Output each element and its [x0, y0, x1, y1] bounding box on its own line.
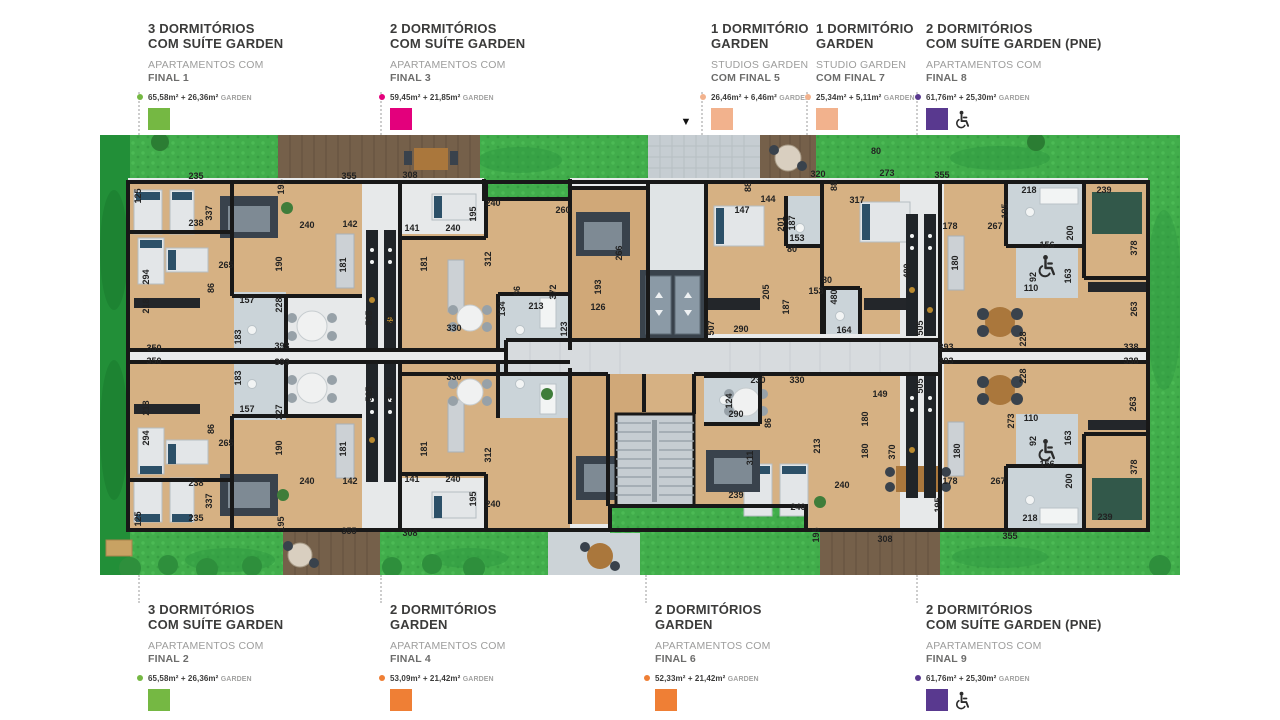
legend-color-swatch — [148, 689, 170, 711]
svg-text:267: 267 — [990, 476, 1005, 486]
svg-text:88: 88 — [743, 182, 753, 192]
legend-area: 61,76m² + 25,30m² GARDEN — [926, 674, 1147, 683]
svg-text:355: 355 — [1002, 531, 1017, 541]
svg-text:480: 480 — [829, 289, 839, 304]
svg-text:240: 240 — [445, 223, 460, 233]
svg-text:239: 239 — [1097, 512, 1112, 522]
legend-area: 52,33m² + 21,42m² GARDEN — [655, 674, 876, 683]
svg-text:88: 88 — [829, 181, 839, 191]
svg-text:240: 240 — [299, 220, 314, 230]
svg-text:80: 80 — [871, 146, 881, 156]
svg-text:180: 180 — [860, 443, 870, 458]
svg-text:157: 157 — [239, 404, 254, 414]
svg-text:505: 505 — [915, 378, 925, 393]
svg-text:125: 125 — [133, 188, 143, 203]
legend-title: 3 DORMITÓRIOS COM SUÍTE GARDEN — [148, 22, 369, 52]
svg-text:337: 337 — [204, 493, 214, 508]
svg-text:190: 190 — [274, 440, 284, 455]
legend-bullet-icon — [137, 675, 143, 681]
legend-title: 2 DORMITÓRIOS GARDEN — [390, 603, 611, 633]
svg-text:294: 294 — [141, 269, 151, 284]
svg-text:350: 350 — [146, 356, 161, 366]
legend-bullet-icon — [379, 675, 385, 681]
svg-text:180: 180 — [860, 411, 870, 426]
svg-text:378: 378 — [1129, 240, 1139, 255]
svg-text:153: 153 — [789, 233, 804, 243]
svg-text:110: 110 — [1024, 413, 1039, 423]
svg-text:330: 330 — [789, 375, 804, 385]
svg-text:338: 338 — [1123, 342, 1138, 352]
svg-text:372: 372 — [548, 284, 558, 299]
legend-color-swatch — [390, 108, 412, 130]
svg-text:240: 240 — [790, 502, 805, 512]
legend-dotted-line — [380, 575, 382, 603]
legend-dotted-line — [916, 575, 918, 603]
svg-text:308: 308 — [402, 170, 417, 180]
legend-title: 2 DORMITÓRIOS COM SUÍTE GARDEN — [390, 22, 611, 52]
svg-text:320: 320 — [810, 169, 825, 179]
svg-text:238: 238 — [188, 218, 203, 228]
svg-text:134: 134 — [497, 301, 507, 316]
svg-text:393: 393 — [938, 342, 953, 352]
svg-text:370: 370 — [887, 444, 897, 459]
legend-bullet-icon — [379, 94, 385, 100]
legend-title: 2 DORMITÓRIOS GARDEN — [655, 603, 876, 633]
svg-text:149: 149 — [872, 389, 887, 399]
svg-text:350: 350 — [146, 343, 161, 353]
svg-text:393: 393 — [274, 341, 289, 351]
svg-text:86: 86 — [512, 286, 522, 296]
svg-text:183: 183 — [233, 370, 243, 385]
svg-text:195: 195 — [468, 206, 478, 221]
svg-text:355: 355 — [934, 170, 949, 180]
svg-text:290: 290 — [728, 409, 743, 419]
svg-text:193: 193 — [593, 279, 603, 294]
svg-text:181: 181 — [338, 441, 348, 456]
legend-subtitle: APARTAMENTOS COMFINAL 3 — [390, 59, 611, 85]
svg-text:240: 240 — [445, 474, 460, 484]
svg-text:218: 218 — [141, 298, 151, 313]
legend-subtitle: APARTAMENTOS COMFINAL 8 — [926, 59, 1147, 85]
svg-text:181: 181 — [338, 257, 348, 272]
svg-text:260: 260 — [555, 205, 570, 215]
svg-text:195: 195 — [811, 527, 821, 542]
picnic-table — [106, 540, 132, 556]
svg-text:213: 213 — [812, 438, 822, 453]
legend-bullet-icon — [644, 675, 650, 681]
legend-subtitle: APARTAMENTOS COMFINAL 9 — [926, 640, 1147, 666]
svg-text:205: 205 — [761, 284, 771, 299]
svg-text:187: 187 — [781, 299, 791, 314]
svg-text:228: 228 — [1018, 331, 1028, 346]
svg-text:123: 123 — [559, 321, 569, 336]
legend-color-swatch — [711, 108, 733, 130]
svg-text:195: 195 — [1000, 203, 1010, 218]
svg-text:200: 200 — [1065, 225, 1075, 240]
svg-text:181: 181 — [419, 256, 429, 271]
svg-text:163: 163 — [1063, 430, 1073, 445]
legend-item: 2 DORMITÓRIOS COM SUÍTE GARDEN APARTAMEN… — [379, 22, 611, 135]
svg-text:235: 235 — [188, 513, 203, 523]
svg-text:178: 178 — [942, 476, 957, 486]
svg-text:311: 311 — [745, 451, 755, 466]
svg-text:157: 157 — [239, 295, 254, 305]
legend-color-swatch — [655, 689, 677, 711]
svg-text:201: 201 — [776, 216, 786, 231]
svg-text:187: 187 — [787, 215, 797, 230]
floor-plan-rendering: 1252353372382658629421815718335039319024… — [100, 135, 1180, 575]
svg-text:317: 317 — [849, 195, 864, 205]
svg-text:312: 312 — [483, 447, 493, 462]
legend-bullet-icon — [805, 94, 811, 100]
legend-item: 2 DORMITÓRIOS GARDEN APARTAMENTOS COMFIN… — [644, 603, 876, 703]
svg-text:218: 218 — [1022, 513, 1037, 523]
svg-text:312: 312 — [483, 251, 493, 266]
svg-text:239: 239 — [728, 490, 743, 500]
svg-text:505: 505 — [915, 320, 925, 335]
svg-text:294: 294 — [141, 430, 151, 445]
legend-color-swatch — [390, 689, 412, 711]
svg-text:141: 141 — [404, 474, 419, 484]
legend-area: 59,45m² + 21,85m² GARDEN — [390, 93, 611, 102]
svg-text:480: 480 — [902, 263, 912, 278]
svg-text:180: 180 — [952, 443, 962, 458]
legend-color-swatch — [148, 108, 170, 130]
svg-text:200: 200 — [1064, 473, 1074, 488]
svg-text:337: 337 — [204, 205, 214, 220]
svg-text:330: 330 — [446, 323, 461, 333]
svg-text:378: 378 — [1129, 459, 1139, 474]
legend-area: 61,76m² + 25,30m² GARDEN — [926, 93, 1147, 102]
staircase — [616, 414, 694, 506]
svg-text:265: 265 — [218, 438, 233, 448]
svg-text:163: 163 — [1063, 268, 1073, 283]
svg-text:142: 142 — [342, 219, 357, 229]
svg-text:86: 86 — [206, 283, 216, 293]
legend-item: 2 DORMITÓRIOS GARDEN APARTAMENTOS COMFIN… — [379, 603, 611, 703]
legend-item: 2 DORMITÓRIOS COM SUÍTE GARDEN (PNE) APA… — [915, 22, 1147, 135]
svg-text:355: 355 — [341, 171, 356, 181]
svg-text:507: 507 — [706, 320, 716, 335]
svg-text:178: 178 — [942, 221, 957, 231]
svg-text:153: 153 — [808, 286, 823, 296]
svg-text:124: 124 — [724, 393, 734, 408]
floorplan-brochure: ▼ — [0, 0, 1280, 720]
svg-text:92: 92 — [1028, 436, 1038, 446]
svg-text:183: 183 — [233, 329, 243, 344]
legend-bullet-icon — [137, 94, 143, 100]
legend-dotted-line — [645, 575, 647, 603]
svg-text:230: 230 — [750, 375, 765, 385]
svg-text:240: 240 — [485, 499, 500, 509]
svg-text:164: 164 — [836, 325, 851, 335]
svg-text:240: 240 — [299, 476, 314, 486]
svg-text:240: 240 — [834, 480, 849, 490]
svg-text:266: 266 — [614, 245, 624, 260]
floor-plan: 1252353372382658629421815718335039319024… — [100, 135, 1180, 575]
svg-text:213: 213 — [528, 301, 543, 311]
legend-item: 3 DORMITÓRIOS COM SUÍTE GARDEN APARTAMEN… — [137, 22, 369, 135]
legend-item: 3 DORMITÓRIOS COM SUÍTE GARDEN APARTAMEN… — [137, 603, 369, 703]
legend-subtitle: APARTAMENTOS COMFINAL 4 — [390, 640, 611, 666]
svg-text:392: 392 — [385, 386, 395, 401]
svg-text:228: 228 — [274, 297, 284, 312]
svg-text:308: 308 — [877, 534, 892, 544]
wheelchair-icon — [954, 691, 973, 710]
svg-text:263: 263 — [1128, 396, 1138, 411]
svg-text:142: 142 — [342, 476, 357, 486]
svg-text:80: 80 — [822, 275, 832, 285]
svg-text:338: 338 — [1123, 356, 1138, 366]
legend-subtitle: APARTAMENTOS COMFINAL 1 — [148, 59, 369, 85]
svg-text:86: 86 — [763, 418, 773, 428]
svg-text:110: 110 — [1024, 283, 1039, 293]
legend-dotted-line — [138, 575, 140, 603]
svg-text:308: 308 — [402, 528, 417, 538]
svg-text:273: 273 — [879, 168, 894, 178]
legend-subtitle: APARTAMENTOS COMFINAL 2 — [148, 640, 369, 666]
svg-text:195: 195 — [276, 516, 286, 531]
svg-text:392: 392 — [385, 310, 395, 325]
svg-text:92: 92 — [1028, 272, 1038, 282]
entrance-arrow-icon: ▼ — [677, 117, 695, 128]
legend-bullet-icon — [915, 675, 921, 681]
svg-text:126: 126 — [590, 302, 605, 312]
svg-text:267: 267 — [987, 221, 1002, 231]
svg-text:265: 265 — [218, 260, 233, 270]
svg-text:190: 190 — [274, 256, 284, 271]
legend-area: 53,09m² + 21,42m² GARDEN — [390, 674, 611, 683]
svg-text:273: 273 — [1006, 413, 1016, 428]
svg-text:147: 147 — [734, 205, 749, 215]
svg-text:227: 227 — [274, 404, 284, 419]
legend-area: 65,58m² + 26,36m² GARDEN — [148, 674, 369, 683]
svg-text:393: 393 — [274, 357, 289, 367]
svg-text:144: 144 — [760, 194, 775, 204]
svg-text:240: 240 — [485, 198, 500, 208]
svg-text:195: 195 — [468, 491, 478, 506]
svg-text:195: 195 — [276, 179, 286, 194]
wheelchair-icon — [954, 110, 973, 129]
svg-text:505: 505 — [364, 386, 374, 401]
svg-text:156: 156 — [1039, 240, 1054, 250]
svg-text:263: 263 — [1129, 301, 1139, 316]
legend-color-swatch — [926, 689, 948, 711]
svg-text:238: 238 — [188, 478, 203, 488]
svg-text:355: 355 — [341, 526, 356, 536]
legend-bullet-icon — [700, 94, 706, 100]
legend-title: 2 DORMITÓRIOS COM SUÍTE GARDEN (PNE) — [926, 22, 1147, 52]
svg-text:393: 393 — [938, 356, 953, 366]
svg-text:218: 218 — [141, 400, 151, 415]
svg-text:239: 239 — [1096, 185, 1111, 195]
svg-text:218: 218 — [1021, 185, 1036, 195]
svg-text:505: 505 — [364, 310, 374, 325]
svg-text:181: 181 — [419, 441, 429, 456]
svg-text:195: 195 — [933, 497, 943, 512]
svg-text:80: 80 — [787, 244, 797, 254]
svg-text:228: 228 — [1018, 368, 1028, 383]
legend-color-swatch — [816, 108, 838, 130]
svg-text:235: 235 — [188, 171, 203, 181]
legend-subtitle: APARTAMENTOS COMFINAL 6 — [655, 640, 876, 666]
legend-title: 2 DORMITÓRIOS COM SUÍTE GARDEN (PNE) — [926, 603, 1147, 633]
svg-text:125: 125 — [133, 511, 143, 526]
legend-title: 3 DORMITÓRIOS COM SUÍTE GARDEN — [148, 603, 369, 633]
legend-color-swatch — [926, 108, 948, 130]
legend-bullet-icon — [915, 94, 921, 100]
svg-text:180: 180 — [950, 255, 960, 270]
svg-text:290: 290 — [733, 324, 748, 334]
svg-text:141: 141 — [404, 223, 419, 233]
svg-text:330: 330 — [446, 372, 461, 382]
legend-area: 65,58m² + 26,36m² GARDEN — [148, 93, 369, 102]
legend-item: 2 DORMITÓRIOS COM SUÍTE GARDEN (PNE) APA… — [915, 603, 1147, 703]
svg-text:86: 86 — [206, 424, 216, 434]
